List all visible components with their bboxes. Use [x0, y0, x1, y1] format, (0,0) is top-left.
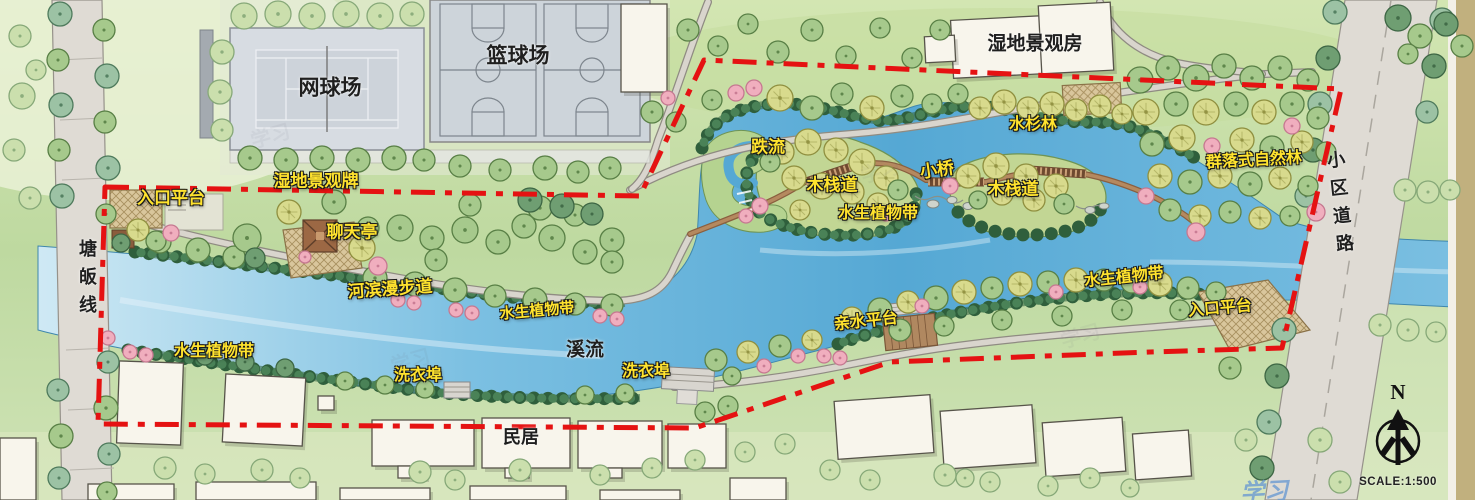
- tree-icon: [369, 257, 387, 275]
- tree-icon: [409, 461, 431, 483]
- tree-icon: [1329, 471, 1351, 493]
- tree-icon: [425, 249, 447, 271]
- tree-icon: [1249, 207, 1271, 229]
- tree-icon: [702, 90, 722, 110]
- tree-icon: [1014, 164, 1038, 188]
- tree-icon: [891, 85, 913, 107]
- tree-icon: [416, 380, 434, 398]
- tree-icon: [19, 187, 41, 209]
- tree-icon: [1219, 201, 1241, 223]
- tree-icon: [1138, 188, 1154, 204]
- tree-icon: [1394, 179, 1416, 201]
- tree-icon: [791, 349, 805, 363]
- building: [0, 438, 36, 500]
- tree-icon: [1089, 95, 1111, 117]
- tree-icon: [661, 91, 675, 105]
- tree-icon: [1280, 92, 1304, 116]
- tree-icon: [1398, 44, 1418, 64]
- tree-icon: [860, 470, 880, 490]
- map-east-edge: [1448, 0, 1475, 500]
- site-plan-canvas: 网球场篮球场湿地景观房民居溪流塘皈线小区道路入口平台湿地景观牌聊天亭河滨漫步道水…: [0, 0, 1475, 500]
- tree-icon: [1397, 319, 1419, 341]
- tennis-court-shape: [200, 28, 424, 150]
- tree-icon: [1140, 132, 1164, 156]
- tree-icon: [539, 225, 565, 251]
- tree-icon: [48, 139, 70, 161]
- tree-icon: [1235, 429, 1257, 451]
- tree-icon: [276, 359, 294, 377]
- tree-icon: [1206, 282, 1226, 302]
- tree-icon: [346, 148, 370, 172]
- tree-icon: [1133, 99, 1159, 125]
- tree-icon: [449, 155, 471, 177]
- tree-icon: [550, 194, 574, 218]
- tree-icon: [163, 225, 179, 241]
- tree-icon: [236, 353, 254, 371]
- tree-icon: [1269, 167, 1291, 189]
- tree-icon: [849, 149, 875, 175]
- building: [1132, 430, 1191, 480]
- tree-icon: [600, 228, 624, 252]
- tree-icon: [238, 146, 262, 170]
- tree-icon: [833, 351, 847, 365]
- tree-icon: [1257, 410, 1281, 434]
- tree-icon: [948, 84, 968, 104]
- tree-icon: [969, 191, 987, 209]
- tree-icon: [860, 96, 884, 120]
- tree-icon: [992, 90, 1016, 114]
- tree-icon: [1080, 468, 1100, 488]
- tree-icon: [573, 240, 597, 264]
- tree-icon: [48, 2, 72, 26]
- tree-icon: [1316, 46, 1340, 70]
- building: [1038, 2, 1113, 74]
- compass-north-letter: N: [1358, 380, 1438, 405]
- tree-icon: [934, 464, 956, 486]
- tree-icon: [1023, 189, 1045, 211]
- tree-icon: [992, 310, 1012, 330]
- tree-icon: [1148, 272, 1172, 296]
- building: [117, 361, 184, 445]
- tree-icon: [486, 230, 510, 254]
- tree-icon: [1224, 92, 1248, 116]
- tree-icon: [1238, 172, 1262, 196]
- tree-icon: [980, 472, 1000, 492]
- north-arrow-icon: [1358, 405, 1438, 471]
- tree-icon: [1121, 479, 1139, 497]
- tree-icon: [49, 424, 73, 448]
- tree-icon: [208, 80, 232, 104]
- tree-icon: [299, 251, 311, 263]
- tree-icon: [49, 93, 73, 117]
- tree-icon: [1054, 194, 1074, 214]
- tree-icon: [1052, 306, 1072, 326]
- tree-icon: [357, 217, 379, 239]
- tree-icon: [841, 307, 863, 329]
- tree-icon: [1268, 56, 1292, 80]
- tree-icon: [824, 138, 848, 162]
- tree-icon: [154, 457, 176, 479]
- tree-icon: [1183, 65, 1209, 91]
- tree-icon: [983, 153, 1009, 179]
- building: [940, 405, 1036, 469]
- tree-icon: [407, 296, 421, 310]
- tree-icon: [1164, 92, 1188, 116]
- tree-icon: [265, 1, 291, 27]
- tree-icon: [123, 345, 137, 359]
- tree-icon: [790, 200, 810, 220]
- tree-icon: [956, 164, 980, 188]
- tree-icon: [96, 156, 120, 180]
- tree-icon: [738, 14, 758, 34]
- building: [621, 4, 667, 92]
- tree-icon: [593, 309, 607, 323]
- building: [730, 478, 786, 500]
- tree-icon: [728, 85, 744, 101]
- tree-icon: [817, 349, 831, 363]
- tree-icon: [1193, 99, 1219, 125]
- tree-icon: [1369, 314, 1391, 336]
- tree-icon: [139, 348, 153, 362]
- tree-icon: [599, 157, 621, 179]
- tree-icon: [757, 359, 771, 373]
- tree-icon: [831, 83, 853, 105]
- tree-icon: [801, 19, 823, 41]
- tree-icon: [1416, 101, 1438, 123]
- basketball-court-shape: [430, 0, 650, 142]
- tree-icon: [1307, 107, 1329, 129]
- tree-icon: [708, 36, 728, 56]
- tree-icon: [1093, 269, 1115, 291]
- tree-icon: [382, 146, 406, 170]
- tree-icon: [1440, 180, 1460, 200]
- tree-icon: [47, 49, 69, 71]
- tree-icon: [1252, 100, 1276, 124]
- tree-icon: [767, 41, 789, 63]
- tree-icon: [211, 119, 233, 141]
- watermark: 学习: [1239, 471, 1289, 500]
- tree-icon: [775, 434, 795, 454]
- tree-icon: [735, 442, 755, 462]
- tree-icon: [705, 349, 727, 371]
- tree-icon: [533, 156, 557, 180]
- tree-icon: [127, 219, 149, 241]
- tree-icon: [836, 46, 856, 66]
- tree-icon: [210, 40, 234, 64]
- tree-icon: [1177, 277, 1199, 299]
- tree-icon: [641, 101, 663, 123]
- tree-icon: [1280, 206, 1300, 226]
- tree-icon: [1230, 128, 1254, 152]
- tree-icon: [93, 19, 115, 41]
- tree-icon: [737, 341, 759, 363]
- tree-icon: [1260, 136, 1284, 160]
- tree-icon: [1178, 170, 1202, 194]
- tree-icon: [274, 148, 298, 172]
- tree-icon: [1148, 164, 1172, 188]
- tree-icon: [1112, 104, 1132, 124]
- building: [1042, 417, 1126, 476]
- tree-icon: [567, 161, 589, 183]
- tree-icon: [746, 80, 762, 96]
- tree-icon: [484, 285, 506, 307]
- building: [222, 374, 305, 446]
- tree-icon: [94, 111, 116, 133]
- tree-icon: [991, 183, 1013, 205]
- tree-icon: [809, 173, 835, 199]
- tree-icon: [610, 312, 624, 326]
- north-compass: N SCALE:1:500: [1358, 380, 1438, 488]
- tree-icon: [581, 203, 603, 225]
- tree-icon: [1169, 125, 1195, 151]
- tree-icon: [782, 166, 806, 190]
- tree-icon: [889, 319, 911, 341]
- tree-icon: [1284, 118, 1300, 134]
- building: [951, 16, 1046, 79]
- tree-icon: [1308, 428, 1332, 452]
- tree-icon: [1112, 300, 1132, 320]
- tree-icon: [26, 60, 46, 80]
- tree-icon: [1434, 12, 1458, 36]
- tree-icon: [452, 217, 478, 243]
- tree-icon: [277, 200, 301, 224]
- tree-icon: [489, 159, 511, 181]
- tree-icon: [245, 248, 265, 268]
- tree-icon: [956, 469, 974, 487]
- tree-icon: [509, 459, 531, 481]
- tree-icon: [888, 180, 908, 200]
- tree-icon: [1417, 181, 1439, 203]
- tree-icon: [3, 139, 25, 161]
- tree-icon: [601, 251, 623, 273]
- tree-icon: [902, 48, 922, 68]
- tree-icon: [9, 83, 35, 109]
- tree-icon: [9, 25, 31, 47]
- tree-icon: [1040, 92, 1064, 116]
- tree-icon: [915, 299, 929, 313]
- tree-icon: [251, 459, 273, 481]
- tree-icon: [459, 194, 481, 216]
- tree-icon: [795, 129, 821, 155]
- tree-icon: [391, 293, 405, 307]
- tree-icon: [98, 443, 120, 465]
- tree-icon: [879, 207, 893, 221]
- tree-icon: [1187, 223, 1205, 241]
- tree-icon: [760, 152, 780, 172]
- tree-icon: [590, 465, 610, 485]
- tree-icon: [723, 367, 741, 385]
- building: [600, 490, 680, 500]
- tree-icon: [1049, 285, 1063, 299]
- tree-icon: [739, 209, 753, 223]
- tree-icon: [1133, 280, 1147, 294]
- tree-icon: [642, 458, 662, 478]
- tree-icon: [186, 238, 210, 262]
- tree-icon: [1038, 476, 1058, 496]
- tree-icon: [413, 149, 435, 171]
- tree-icon: [376, 376, 394, 394]
- tree-icon: [1156, 56, 1180, 80]
- tree-icon: [1170, 300, 1190, 320]
- tree-icon: [695, 402, 715, 422]
- tree-icon: [942, 178, 958, 194]
- tree-icon: [367, 3, 393, 29]
- tree-icon: [403, 272, 427, 296]
- tree-icon: [1426, 322, 1446, 342]
- tree-icon: [1017, 97, 1039, 119]
- tree-icon: [769, 335, 791, 357]
- tree-icon: [400, 2, 424, 26]
- tree-icon: [1065, 99, 1087, 121]
- tree-icon: [465, 306, 479, 320]
- tree-icon: [870, 18, 890, 38]
- tree-icon: [1219, 357, 1241, 379]
- tree-icon: [952, 280, 976, 304]
- tree-icon: [112, 234, 130, 252]
- tree-icon: [47, 379, 69, 401]
- tree-icon: [1323, 0, 1347, 24]
- tree-icon: [196, 347, 214, 365]
- tree-icon: [299, 3, 325, 29]
- tree-icon: [1064, 268, 1088, 292]
- tree-icon: [922, 94, 942, 114]
- tree-icon: [322, 190, 346, 214]
- tree-icon: [195, 464, 215, 484]
- tree-icon: [752, 198, 768, 214]
- building: [340, 488, 430, 500]
- tree-icon: [387, 215, 413, 241]
- tree-icon: [616, 384, 634, 402]
- tree-icon: [820, 460, 840, 480]
- tree-icon: [1451, 35, 1473, 57]
- tree-icon: [290, 468, 310, 488]
- tree-icon: [802, 330, 822, 350]
- tree-icon: [1265, 364, 1289, 388]
- tree-icon: [800, 96, 824, 120]
- tree-icon: [443, 278, 467, 302]
- scale-text: SCALE:1:500: [1358, 476, 1438, 488]
- building: [318, 396, 334, 410]
- tree-icon: [868, 298, 892, 322]
- tree-icon: [50, 184, 74, 208]
- tree-icon: [685, 450, 705, 470]
- tree-icon: [48, 467, 70, 489]
- tree-icon: [677, 19, 699, 41]
- tree-icon: [231, 3, 257, 29]
- tree-icon: [310, 146, 334, 170]
- tree-icon: [1212, 54, 1236, 78]
- tree-icon: [523, 288, 547, 312]
- tree-icon: [97, 482, 117, 500]
- tree-icon: [1008, 272, 1032, 296]
- tree-icon: [969, 97, 991, 119]
- washing-wharf-west-shape: [444, 382, 470, 398]
- tree-icon: [564, 293, 586, 315]
- tree-icon: [1208, 164, 1232, 188]
- building: [834, 395, 934, 460]
- tree-icon: [981, 277, 1003, 299]
- site-plan-drawing: [0, 0, 1475, 500]
- tree-icon: [333, 1, 359, 27]
- tree-icon: [449, 303, 463, 317]
- tree-icon: [840, 180, 864, 204]
- tree-icon: [420, 226, 444, 250]
- tree-icon: [95, 64, 119, 88]
- tree-icon: [1422, 54, 1446, 78]
- tree-icon: [1204, 138, 1220, 154]
- tree-icon: [336, 372, 354, 390]
- tree-icon: [445, 470, 465, 490]
- tree-icon: [934, 316, 954, 336]
- tree-icon: [1385, 5, 1411, 31]
- tree-icon: [1159, 199, 1181, 221]
- tree-icon: [930, 20, 950, 40]
- building: [470, 486, 566, 500]
- tree-icon: [576, 386, 594, 404]
- tree-icon: [767, 85, 793, 111]
